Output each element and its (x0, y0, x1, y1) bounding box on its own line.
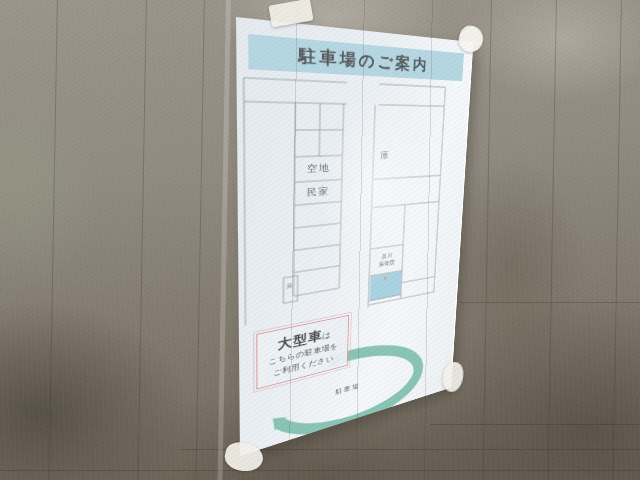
wall-joint (430, 424, 640, 425)
parking-notice-paper: 駐車場のご案内 空地 民家 庫 及川 接骨院 入口 駐車場 大型車は こちらの駐… (236, 17, 473, 456)
map-label-clinic-line2: 接骨院 (378, 259, 394, 269)
photo-scene: 駐車場のご案内 空地 民家 庫 及川 接骨院 入口 駐車場 大型車は こちらの駐… (0, 0, 640, 480)
notice-particle: は (322, 330, 331, 340)
wall-joint (0, 470, 640, 471)
map-label-vacant-lot: 空地 (295, 155, 343, 182)
map-label-house: 民家 (294, 179, 341, 205)
map-label-storage: 庫 (377, 148, 393, 163)
map-label-entrance: 入口 (284, 278, 296, 302)
